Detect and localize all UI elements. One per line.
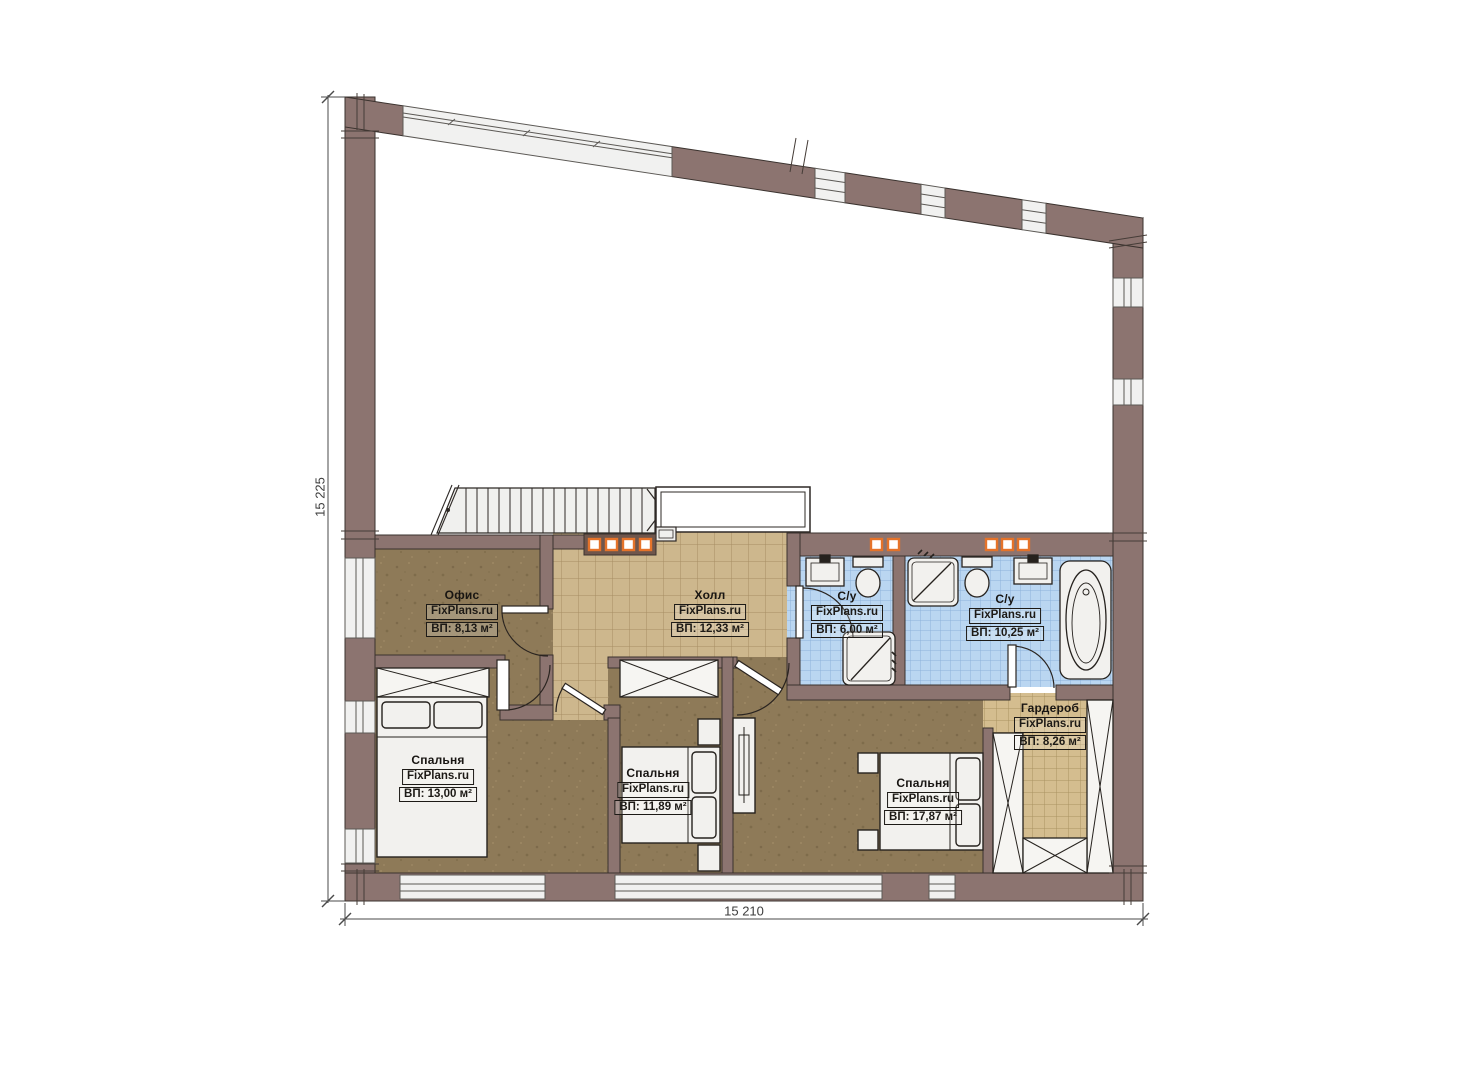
- office-right-wall: [540, 535, 553, 609]
- right-window: [1113, 379, 1143, 405]
- watermark: FixPlans.ru: [811, 605, 883, 621]
- dresser: [733, 718, 755, 813]
- staircase: [431, 485, 810, 541]
- watermark: FixPlans.ru: [674, 604, 746, 620]
- bathtub: [1060, 561, 1111, 679]
- room-name: Спальня: [614, 766, 691, 780]
- top-window: [921, 184, 945, 218]
- bedroom-2-closet: [620, 660, 718, 697]
- bottom-window: [929, 875, 955, 899]
- left-wall: [345, 97, 375, 901]
- bathrooms-bottom-wall: [1056, 685, 1113, 700]
- hall-railing: [584, 534, 656, 555]
- right-window: [1113, 278, 1143, 307]
- room-label-bath-big: С/у FixPlans.ru ВП: 10,25 м²: [966, 592, 1044, 641]
- left-window: [345, 701, 375, 733]
- wardrobe-closet-right: [1087, 700, 1113, 873]
- top-wall-segment: [1046, 203, 1143, 248]
- room-area: ВП: 13,00 м²: [399, 787, 477, 803]
- room-label-bath-small: С/у FixPlans.ru ВП: 6,00 м²: [811, 589, 883, 638]
- ribbon-window: [403, 106, 672, 177]
- room-area: ВП: 12,33 м²: [671, 622, 749, 638]
- nightstand: [858, 753, 878, 773]
- watermark: FixPlans.ru: [426, 604, 498, 620]
- room-area: ВП: 8,13 м²: [426, 622, 498, 638]
- room-area: ВП: 10,25 м²: [966, 626, 1044, 642]
- room-name: Холл: [671, 588, 749, 602]
- bottom-window: [615, 875, 882, 899]
- watermark: FixPlans.ru: [887, 792, 959, 808]
- bedroom-2-right-wall: [722, 657, 733, 873]
- watermark: FixPlans.ru: [402, 769, 474, 785]
- shower: [843, 632, 896, 685]
- stair-flight: [437, 488, 655, 533]
- room-name: С/у: [811, 589, 883, 603]
- sink: [1014, 555, 1052, 584]
- nightstand: [698, 719, 720, 745]
- top-wall-segment: [945, 188, 1022, 230]
- dimension-width: 15 210: [724, 904, 764, 919]
- room-name: Гардероб: [1014, 701, 1086, 715]
- nightstand: [698, 845, 720, 871]
- watermark: FixPlans.ru: [617, 782, 689, 798]
- toilet: [962, 557, 992, 597]
- room-label-office: Офис FixPlans.ru ВП: 8,13 м²: [426, 588, 498, 637]
- nightstand: [858, 830, 878, 850]
- bathroom-small-left-wall: [787, 533, 800, 586]
- wardrobe-left-wall: [983, 728, 993, 873]
- room-label-hall: Холл FixPlans.ru ВП: 12,33 м²: [671, 588, 749, 637]
- bottom-window: [400, 875, 545, 899]
- room-name: С/у: [966, 592, 1044, 606]
- wardrobe-closet-left: [993, 733, 1023, 873]
- top-wall-segment: [845, 173, 921, 215]
- bathroom-small-left-wall: [787, 638, 800, 687]
- shower: [908, 550, 958, 606]
- sink: [806, 555, 844, 586]
- dimension-height: 15 225: [313, 477, 328, 517]
- room-area: ВП: 17,87 м²: [884, 810, 962, 826]
- room-name: Спальня: [399, 753, 477, 767]
- office-bottom-wall: [375, 655, 505, 668]
- room-area: ВП: 6,00 м²: [811, 623, 883, 639]
- right-wall: [1113, 218, 1143, 901]
- left-window: [345, 829, 375, 863]
- room-label-bedroom-1: Спальня FixPlans.ru ВП: 13,00 м²: [399, 753, 477, 802]
- top-window: [815, 168, 845, 203]
- room-area: ВП: 8,26 м²: [1014, 735, 1086, 751]
- left-window: [345, 558, 375, 638]
- watermark: FixPlans.ru: [969, 608, 1041, 624]
- floor-plan-page: Офис FixPlans.ru ВП: 8,13 м² Холл FixPla…: [0, 0, 1473, 1080]
- room-area: ВП: 11,89 м²: [614, 800, 691, 816]
- bathrooms-bottom-wall: [787, 685, 1010, 700]
- room-name: Офис: [426, 588, 498, 602]
- watermark: FixPlans.ru: [1014, 717, 1086, 733]
- top-window: [1022, 200, 1046, 234]
- room-name: Спальня: [884, 776, 962, 790]
- room-label-bedroom-2: Спальня FixPlans.ru ВП: 11,89 м²: [614, 766, 691, 815]
- bedroom-1-closet: [377, 668, 489, 697]
- room-label-wardrobe: Гардероб FixPlans.ru ВП: 8,26 м²: [1014, 701, 1086, 750]
- wardrobe-closet-bottom: [1023, 838, 1087, 873]
- bathrooms-top-wall: [787, 533, 1113, 556]
- room-label-bedroom-3: Спальня FixPlans.ru ВП: 17,87 м²: [884, 776, 962, 825]
